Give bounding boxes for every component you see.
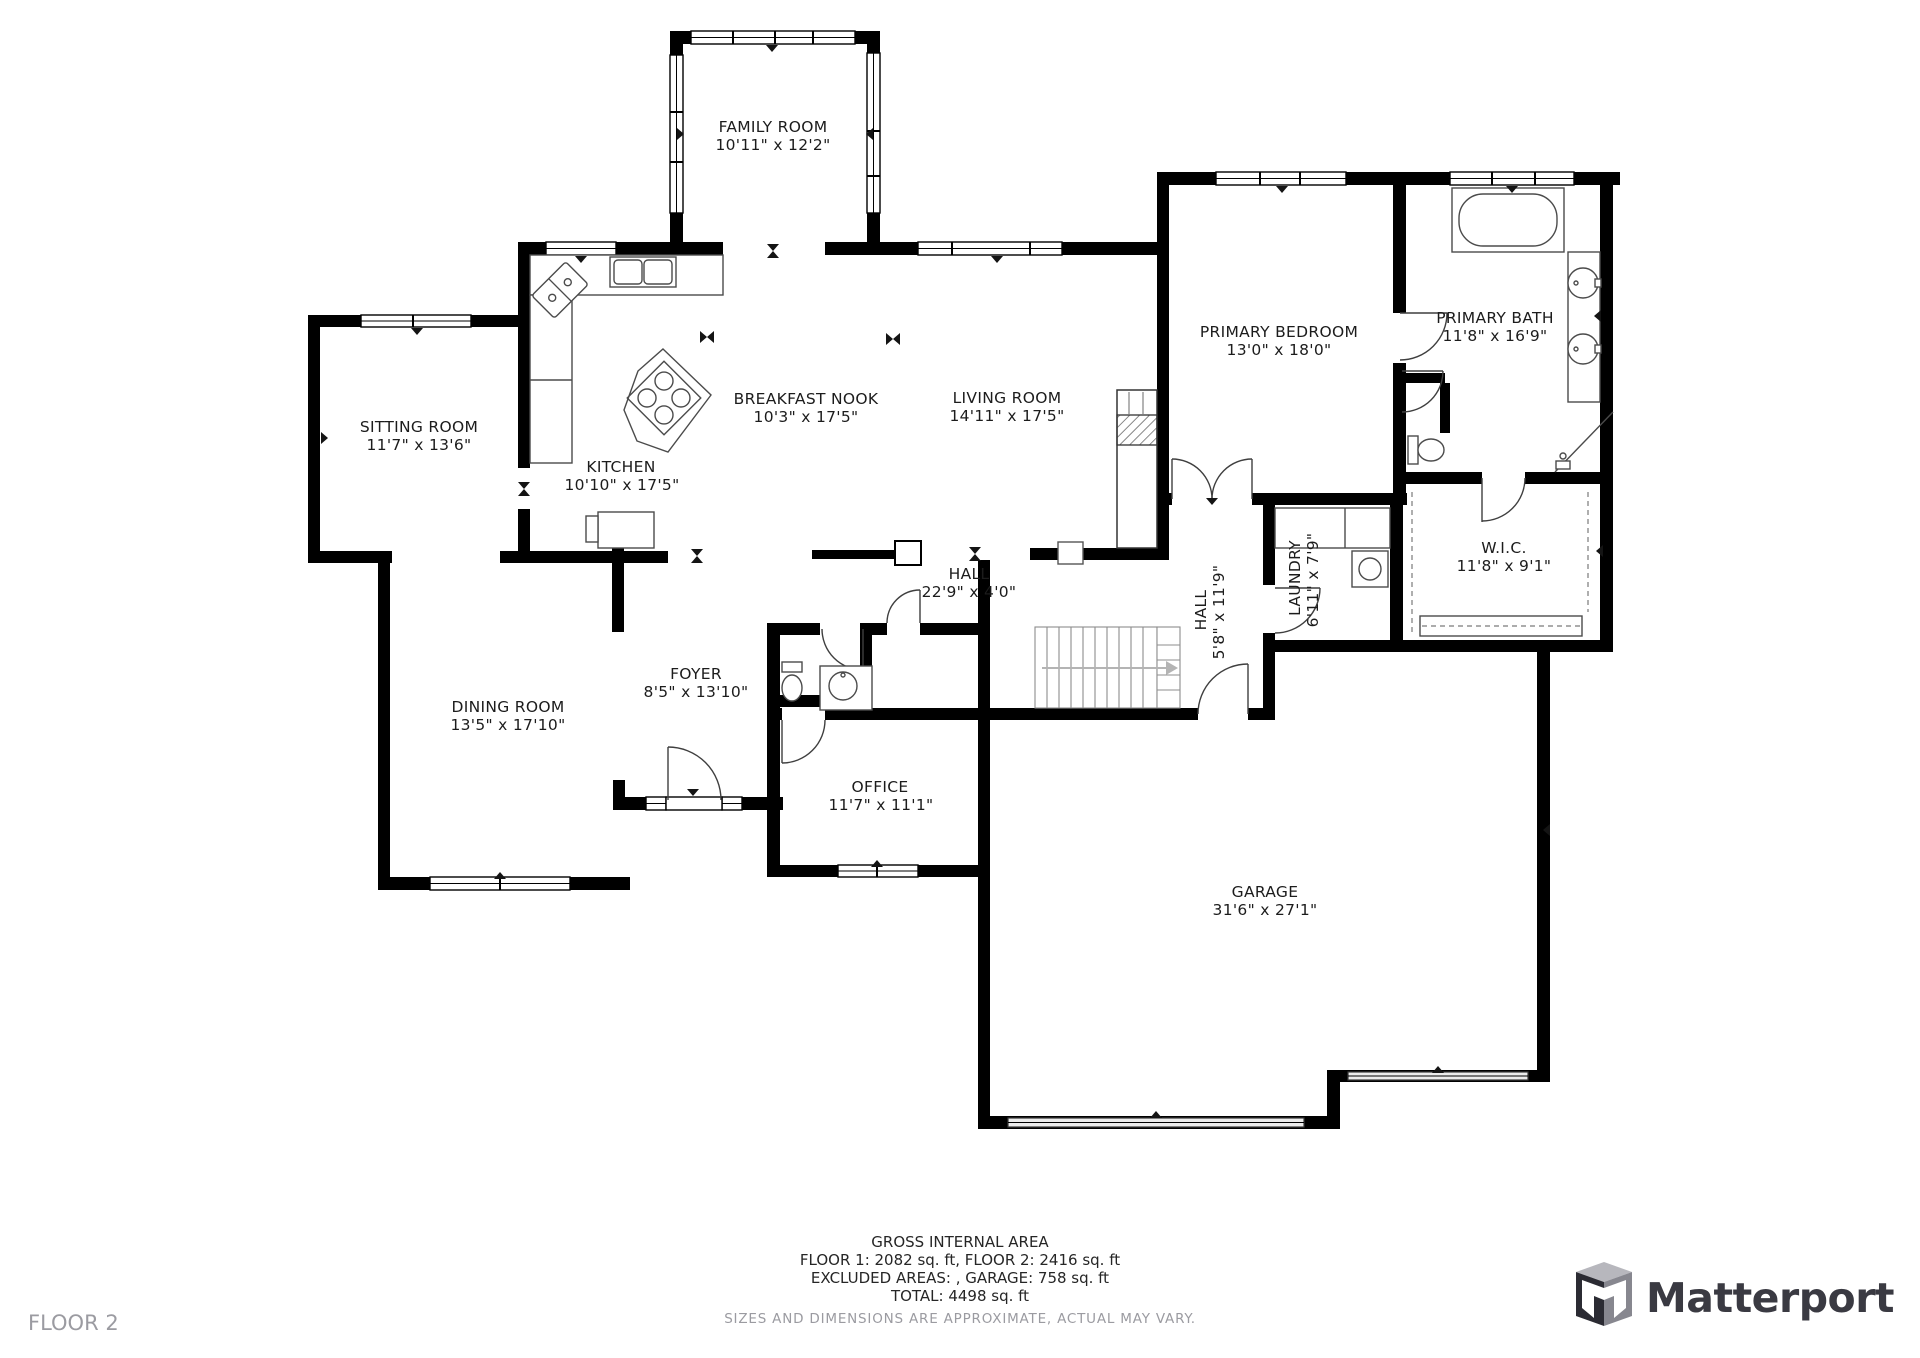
room-label-primary-bedroom: PRIMARY BEDROOM13'0" x 18'0" <box>1200 323 1358 359</box>
disclaimer-label: SIZES AND DIMENSIONS ARE APPROXIMATE, AC… <box>724 1311 1196 1327</box>
room-label-breakfast-nook: BREAKFAST NOOK10'3" x 17'5" <box>734 390 879 426</box>
closet-door <box>887 590 920 623</box>
svg-text:HALL: HALL <box>949 565 990 583</box>
svg-text:10'11" x 12'2": 10'11" x 12'2" <box>715 136 830 154</box>
garage-door <box>1008 1118 1304 1127</box>
wic-door <box>1482 478 1525 522</box>
svg-text:31'6" x 27'1": 31'6" x 27'1" <box>1213 901 1318 919</box>
svg-text:PRIMARY BEDROOM: PRIMARY BEDROOM <box>1200 323 1358 341</box>
svg-text:8'5" x 13'10": 8'5" x 13'10" <box>644 683 749 701</box>
toilet <box>782 662 802 701</box>
svg-text:W.I.C.: W.I.C. <box>1481 539 1527 557</box>
svg-text:14'11" x 17'5": 14'11" x 17'5" <box>949 407 1064 425</box>
room-label-dining-room: DINING ROOM13'5" x 17'10" <box>450 698 565 734</box>
matterport-logo-icon <box>1576 1262 1632 1326</box>
footer: GROSS INTERNAL AREA FLOOR 1: 2082 sq. ft… <box>724 1233 1196 1327</box>
svg-text:22'9" x 4'0": 22'9" x 4'0" <box>922 583 1017 601</box>
svg-text:BREAKFAST NOOK: BREAKFAST NOOK <box>734 390 879 408</box>
room-label-sitting-room: SITTING ROOM11'7" x 13'6" <box>360 418 478 454</box>
kitchen-fixtures <box>530 255 723 548</box>
sidelight-window <box>722 797 742 810</box>
svg-text:10'3" x 17'5": 10'3" x 17'5" <box>754 408 859 426</box>
svg-text:11'7" x 13'6": 11'7" x 13'6" <box>367 436 472 454</box>
window <box>1216 172 1346 185</box>
powder-door <box>822 629 863 671</box>
garage-door <box>1348 1072 1528 1080</box>
sidelight-window <box>646 797 666 810</box>
vanity-sinks <box>1568 252 1601 402</box>
floorplan-drawing: FAMILY ROOM10'11" x 12'2" SITTING ROOM11… <box>0 0 1920 1358</box>
washer <box>1352 551 1388 587</box>
bathtub <box>1452 188 1564 252</box>
room-label-laundry: LAUNDRY 6'11" x 7'9" <box>1286 533 1322 628</box>
svg-text:11'8" x 9'1": 11'8" x 9'1" <box>1457 557 1552 575</box>
window <box>918 242 1062 255</box>
room-label-family-room: FAMILY ROOM10'11" x 12'2" <box>715 118 830 154</box>
svg-text:GARAGE: GARAGE <box>1232 883 1299 901</box>
wc-toilet <box>1408 436 1444 464</box>
svg-text:HALL: HALL <box>1192 590 1210 631</box>
office-door <box>782 720 825 763</box>
total-area-label: TOTAL: 4498 sq. ft <box>890 1287 1029 1305</box>
svg-text:LAUNDRY: LAUNDRY <box>1286 540 1304 616</box>
chimney-chase <box>1117 390 1157 548</box>
front-door-threshold <box>666 797 722 810</box>
svg-text:DINING ROOM: DINING ROOM <box>451 698 564 716</box>
svg-text:OFFICE: OFFICE <box>851 778 908 796</box>
svg-text:13'5" x 17'10": 13'5" x 17'10" <box>450 716 565 734</box>
svg-text:6'11" x 7'9": 6'11" x 7'9" <box>1304 533 1322 628</box>
svg-text:PRIMARY BATH: PRIMARY BATH <box>1436 309 1554 327</box>
staircase <box>1035 627 1180 708</box>
window <box>361 315 471 327</box>
matterport-wordmark: Matterport <box>1646 1274 1894 1322</box>
garage-entry-door <box>1198 664 1248 714</box>
svg-text:13'0" x 18'0": 13'0" x 18'0" <box>1227 341 1332 359</box>
svg-text:SITTING ROOM: SITTING ROOM <box>360 418 478 436</box>
window <box>691 31 855 44</box>
room-label-foyer: FOYER8'5" x 13'10" <box>644 665 749 701</box>
room-label-primary-bath: PRIMARY BATH11'8" x 16'9" <box>1436 309 1554 345</box>
svg-text:10'10" x 17'5": 10'10" x 17'5" <box>564 476 679 494</box>
window <box>546 242 616 255</box>
room-label-living-room: LIVING ROOM14'11" x 17'5" <box>949 389 1064 425</box>
svg-text:LIVING ROOM: LIVING ROOM <box>953 389 1062 407</box>
room-label-garage: GARAGE31'6" x 27'1" <box>1213 883 1318 919</box>
kitchen-island <box>624 349 711 452</box>
svg-text:FOYER: FOYER <box>670 665 722 683</box>
svg-text:FAMILY ROOM: FAMILY ROOM <box>719 118 828 136</box>
floor-number-label: FLOOR 2 <box>28 1311 119 1335</box>
garage-doors <box>1008 1072 1528 1127</box>
window <box>1450 172 1574 185</box>
pedestal-sink <box>820 666 872 710</box>
room-label-office: OFFICE11'7" x 11'1" <box>829 778 934 814</box>
bedroom-double-door <box>1172 459 1252 499</box>
floor-areas-label: FLOOR 1: 2082 sq. ft, FLOOR 2: 2416 sq. … <box>800 1251 1120 1269</box>
gross-internal-area-label: GROSS INTERNAL AREA <box>871 1233 1049 1251</box>
room-label-hall-upper: HALL22'9" x 4'0" <box>922 565 1017 601</box>
svg-text:11'7" x 11'1": 11'7" x 11'1" <box>829 796 934 814</box>
room-label-wic: W.I.C.11'8" x 9'1" <box>1457 539 1552 575</box>
excluded-areas-label: EXCLUDED AREAS: , GARAGE: 758 sq. ft <box>811 1269 1109 1287</box>
svg-text:5'8" x 11'9": 5'8" x 11'9" <box>1210 565 1228 660</box>
floorplan-page: FAMILY ROOM10'11" x 12'2" SITTING ROOM11… <box>0 0 1920 1358</box>
room-label-kitchen: KITCHEN10'10" x 17'5" <box>564 458 679 494</box>
room-label-hall-lower: HALL 5'8" x 11'9" <box>1192 565 1228 660</box>
svg-text:11'8" x 16'9": 11'8" x 16'9" <box>1443 327 1548 345</box>
matterport-logo: Matterport <box>1576 1262 1894 1326</box>
svg-text:KITCHEN: KITCHEN <box>586 458 655 476</box>
